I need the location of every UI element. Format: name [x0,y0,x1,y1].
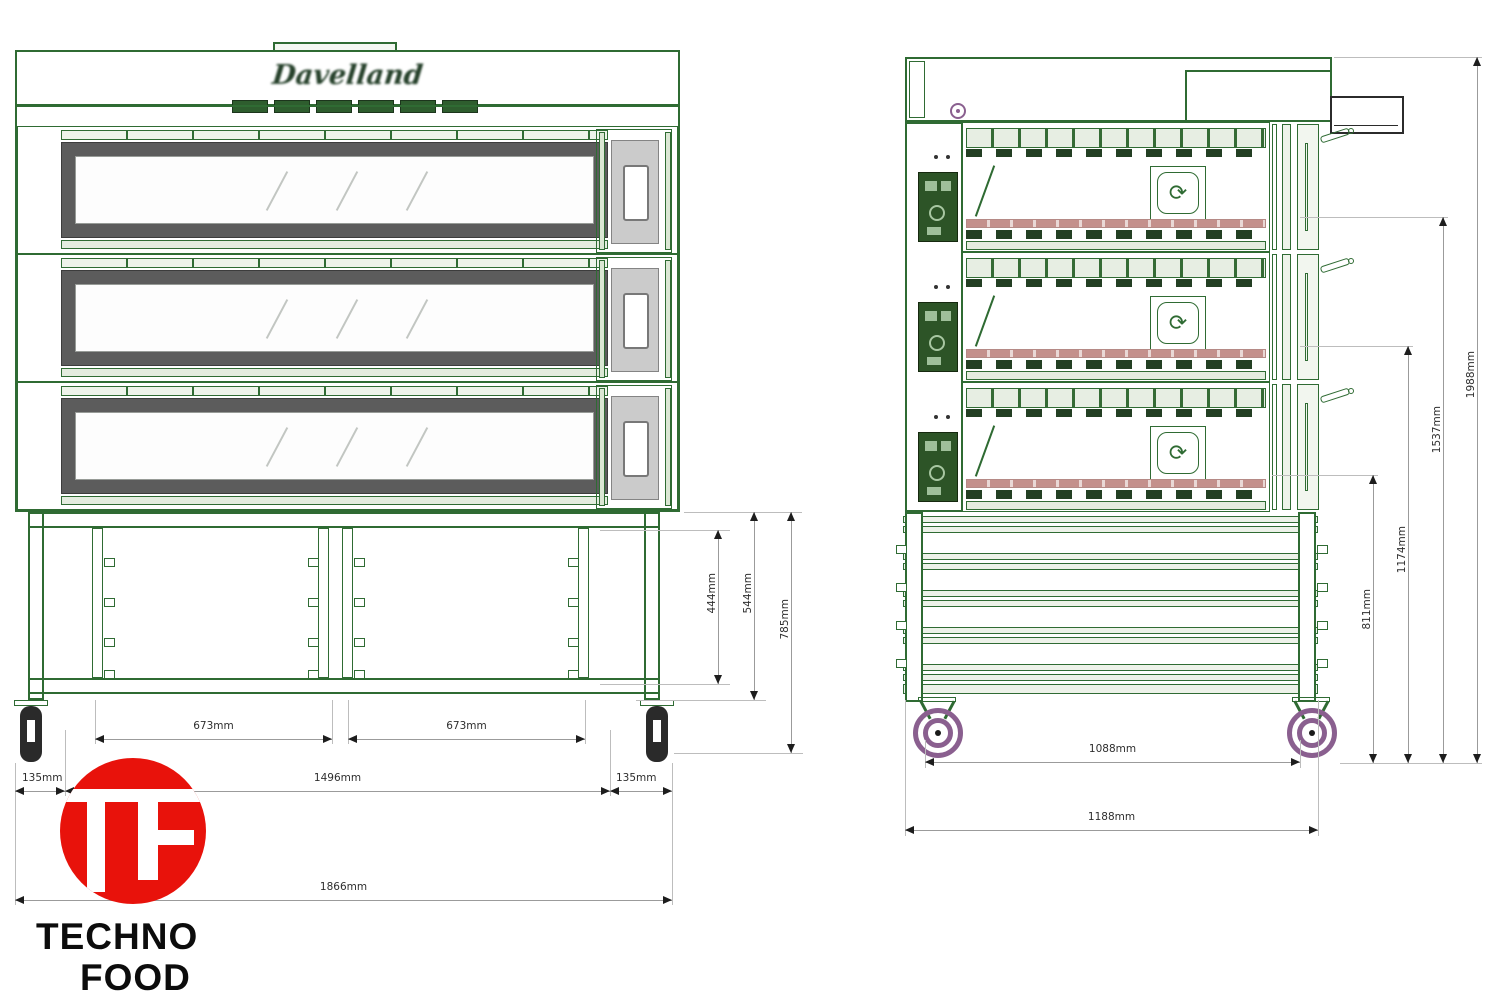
module-sill [966,371,1266,380]
dim-total-depth: 1188mm [905,811,1318,823]
tray-hook [568,558,579,567]
deck-door [61,142,608,238]
stand-post [1298,512,1316,702]
extension-line [1300,740,1301,768]
door-hinge-bar [1282,124,1291,250]
stand-slat [903,637,1318,644]
dimension-line [905,830,1318,831]
knob-detail [925,441,937,451]
indicator-light [934,415,938,419]
dimension-line [1477,57,1478,763]
extension-line [684,512,802,513]
glass-reflection [266,299,288,339]
side-top-panel-edge [909,61,925,118]
stand-slat [903,526,1318,533]
element-dash-row [966,490,1266,499]
wheel-hub [935,730,941,736]
tray-hook [1317,659,1328,668]
tray-hook [568,638,579,647]
heating-element-band [966,128,1266,148]
indicator-light [946,155,950,159]
front-top-panel: Davelland [15,50,680,106]
dim-stand-height: 811mm [1361,588,1373,631]
stand-slat [903,590,1318,597]
extension-line [1340,763,1482,764]
tray-hook [308,638,319,647]
element-dash-row [966,230,1266,239]
panel-side-strip [665,260,671,378]
door-edge [1297,384,1319,510]
tray-hook [104,598,115,607]
dim-total-height: 1988mm [1465,350,1477,399]
deck-door [61,398,608,494]
oven-deck [17,382,678,510]
caster-plate [1292,697,1330,702]
indicator-light [934,285,938,289]
stand-left-leg [28,512,44,700]
tray-rail [318,528,329,678]
tf-monogram-f-stem [138,802,158,880]
tf-monogram-f-arm [158,830,194,845]
side-deck-module: ⟳ [905,382,1365,512]
control-housing [611,396,659,500]
wheel-hub [653,720,661,742]
extension-line [600,530,730,531]
knob-detail [927,227,941,235]
dim-caster-spacing: 1088mm [925,743,1300,755]
wheel-hub [1309,730,1315,736]
logo-text-line2: FOOD [80,957,191,999]
glass-reflection [336,299,358,339]
extension-line [1300,217,1448,218]
hinge-strip [61,258,608,268]
tray-hook [354,558,365,567]
caster-plate [918,697,956,702]
tray-hook [896,659,907,668]
dimension-line [754,512,755,700]
tray-hook [896,583,907,592]
side-deck-module: ⟳ [905,252,1365,382]
tray-hook [568,598,579,607]
steam-hood-box [1185,70,1332,122]
extension-line [585,700,586,744]
tf-monogram-band [60,789,206,802]
dim-shelf-right: 673mm [348,720,585,732]
baking-stone [966,219,1266,228]
control-housing [611,140,659,244]
side-deck-module: ⟳ [905,122,1365,252]
fan-icon: ⟳ [1150,296,1206,350]
door-window [75,284,594,352]
tray-hook [354,598,365,607]
knob-dial [929,205,945,221]
door-hinge-bar [1282,254,1291,380]
tray-rail [92,528,103,678]
door-window [75,156,594,224]
handle-knob [1348,258,1354,264]
knob-detail [925,181,937,191]
indicator-light [946,285,950,289]
tray-hook [308,558,319,567]
panel-side-strip [599,388,605,506]
caster-wheel [646,706,668,762]
temperature-display [623,293,649,349]
element-dash-row [966,279,1266,287]
knob-detail [927,357,941,365]
baking-stone [966,349,1266,358]
door-edge [1297,254,1319,380]
valve-icon [950,103,966,119]
dimension-line [925,762,1300,763]
tray-hook [308,670,319,679]
dimension-line [348,739,585,740]
stand-slat [903,516,1318,523]
extension-line [1318,700,1319,836]
tray-hook [354,670,365,679]
indicator-light [946,415,950,419]
deck-sill [61,496,608,505]
handle-knob [1348,128,1354,134]
door-edge [1297,124,1319,250]
tray-hook [1317,545,1328,554]
extension-line [636,700,766,701]
oven-deck [17,254,678,382]
module-sill [966,501,1266,510]
glass-reflection [336,427,358,467]
extension-line [672,763,673,905]
door-hinge-bar [1272,124,1277,250]
knob-detail [927,487,941,495]
dimension-line [791,512,792,753]
element-dash-row [966,409,1266,417]
extension-line [600,684,730,685]
stand-slat [903,664,1318,671]
stand-bottom-rail [28,678,660,694]
panel-side-strip [665,132,671,250]
dimension-line [718,530,719,684]
tray-hook [896,545,907,554]
knob-detail [941,441,951,451]
tf-monogram-t-stem [87,802,105,892]
wheel-hub [27,720,35,742]
wheel-inner-ring [1297,718,1327,748]
tray-hook [354,638,365,647]
hinge-strip [61,130,608,140]
control-knob [918,172,958,242]
oven-technical-drawing: Davelland [0,0,1501,1000]
glass-reflection [266,171,288,211]
dimension-line [1373,475,1374,763]
heating-element-band [966,258,1266,278]
dim-two-deck-height: 1174mm [1396,525,1408,574]
control-knob [918,432,958,502]
module-sill [966,241,1266,250]
deck-sill [61,368,608,377]
extension-line [1300,346,1413,347]
tray-hook [104,638,115,647]
temperature-display [623,421,649,477]
indicator-light [934,155,938,159]
deck-door [61,270,608,366]
dim-stand-clear-height: 444mm [706,572,718,615]
stand-slat [903,674,1318,681]
tray-hook [308,598,319,607]
door-handle [1320,128,1351,144]
tray-hook [104,670,115,679]
hinge-strip [61,386,608,396]
dimension-line [1443,217,1444,763]
tray-hook [568,670,579,679]
dimension-line [1408,346,1409,763]
tray-rail [578,528,589,678]
oven-deck [17,126,678,254]
stand-right-leg [644,512,660,700]
dim-right-offset: 135mm [616,772,657,784]
tray-hook [896,621,907,630]
dim-stand-total-height: 785mm [779,598,791,641]
dim-shelf-left: 673mm [95,720,332,732]
door-edge-line [1305,273,1308,361]
door-hinge-bar [1282,384,1291,510]
element-dash-row [966,360,1266,369]
brand-logo-text: Davelland [15,60,679,91]
glass-reflection [406,427,428,467]
stand-slat [903,553,1318,560]
deck-control-panel [596,129,672,253]
knob-detail [941,181,951,191]
element-dash-row [966,149,1266,157]
temperature-display [623,165,649,221]
dim-stand-frame-height: 544mm [742,572,754,615]
door-window [75,412,594,480]
control-knob [918,302,958,372]
stand-slat [903,627,1318,634]
dimension-line [95,739,332,740]
panel-side-strip [599,132,605,250]
handle-knob [1348,388,1354,394]
extension-line [1334,57,1482,58]
glass-reflection [406,171,428,211]
door-hinge-bar [1272,384,1277,510]
glass-reflection [336,171,358,211]
door-handle [1320,388,1351,404]
stand-slat [903,600,1318,607]
knob-detail [941,311,951,321]
dim-left-offset: 135mm [22,772,63,784]
caster-wheel [20,706,42,762]
glass-reflection [406,299,428,339]
fan-icon: ⟳ [1150,166,1206,220]
tray-hook [104,558,115,567]
extension-line [674,753,803,754]
tray-hook [1317,583,1328,592]
tray-rail [342,528,353,678]
control-housing [611,268,659,372]
panel-side-strip [599,260,605,378]
knob-dial [929,335,945,351]
door-handle [1320,258,1351,274]
knob-detail [925,311,937,321]
logo-text-line1: TECHNO [36,916,198,958]
valve-dot [956,109,960,113]
dim-three-deck-height: 1537mm [1431,405,1443,454]
knob-dial [929,465,945,481]
deck-sill [61,240,608,249]
techno-food-logo [60,758,206,904]
stand-post [905,512,923,702]
glass-reflection [266,427,288,467]
door-edge-line [1305,403,1308,491]
stand-top-rail [28,512,660,528]
extension-line [1272,475,1378,476]
extension-line [332,700,333,744]
stand-slat [903,563,1318,570]
stand-bottom-rail [903,684,1318,694]
heating-element-band [966,388,1266,408]
panel-side-strip [665,388,671,506]
tray-hook [1317,621,1328,630]
deck-control-panel [596,385,672,509]
deck-control-panel [596,257,672,381]
door-hinge-bar [1272,254,1277,380]
fan-icon: ⟳ [1150,426,1206,480]
baking-stone [966,479,1266,488]
